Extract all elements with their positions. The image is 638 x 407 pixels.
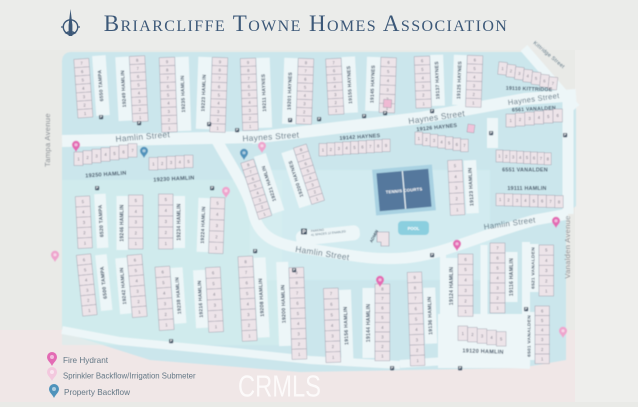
- svg-text:Sprinkler Backflow/Irrigation: Sprinkler Backflow/Irrigation Submeter: [63, 372, 196, 381]
- svg-text:6551 VANALDEN: 6551 VANALDEN: [502, 168, 548, 174]
- svg-text:CRMLS: CRMLS: [238, 369, 321, 403]
- svg-text:Property Backflow: Property Backflow: [64, 388, 130, 397]
- svg-text:POOL: POOL: [408, 226, 420, 231]
- svg-text:6501 VANALDEN: 6501 VANALDEN: [526, 315, 532, 357]
- svg-text:Fire Hydrant: Fire Hydrant: [63, 356, 109, 365]
- svg-text:Tampa Avenue: Tampa Avenue: [43, 113, 52, 167]
- svg-text:Briarcliffe Towne Homes Associ: Briarcliffe Towne Homes Association: [104, 11, 509, 36]
- svg-text:19116 HAMLIN: 19116 HAMLIN: [509, 258, 515, 296]
- svg-text:6521 VANALDEN: 6521 VANALDEN: [530, 247, 536, 289]
- svg-text:19111 HAMLIN: 19111 HAMLIN: [507, 186, 546, 192]
- svg-text:19124 HAMLIN: 19124 HAMLIN: [449, 267, 455, 305]
- svg-text:19144 HAMLIN: 19144 HAMLIN: [366, 304, 372, 342]
- svg-text:Vanalden Avenue: Vanalden Avenue: [563, 215, 572, 278]
- svg-text:19234 HAMLIN: 19234 HAMLIN: [177, 203, 183, 240]
- svg-text:19246 HAMLIN: 19246 HAMLIN: [120, 204, 126, 241]
